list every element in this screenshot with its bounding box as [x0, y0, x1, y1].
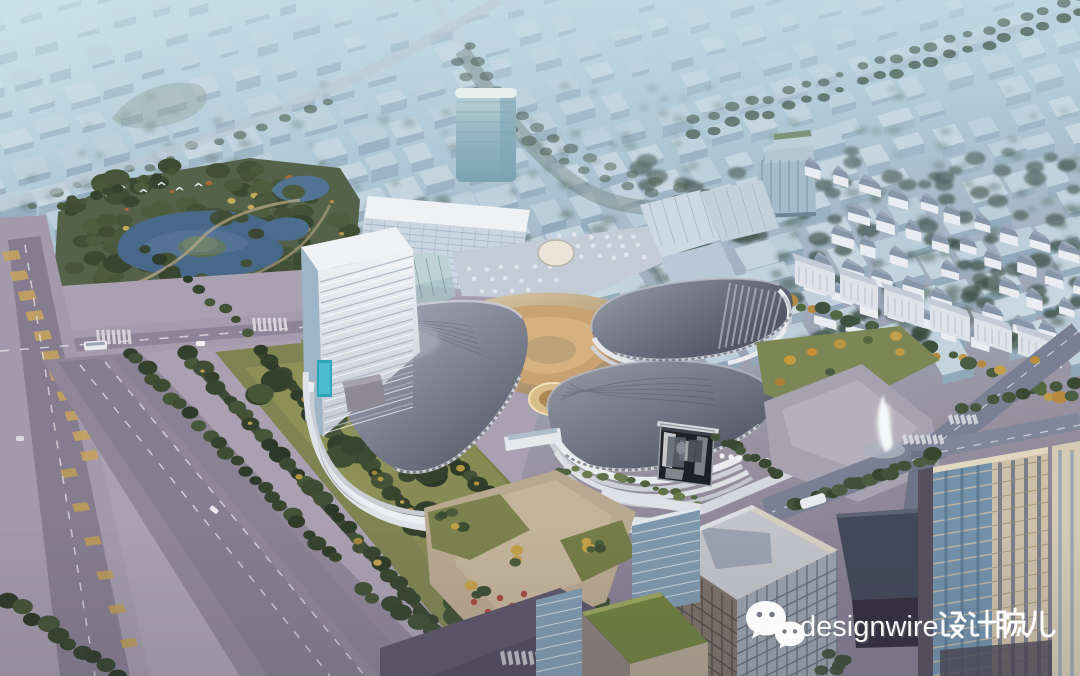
svg-text:designwire: designwire [800, 611, 939, 643]
